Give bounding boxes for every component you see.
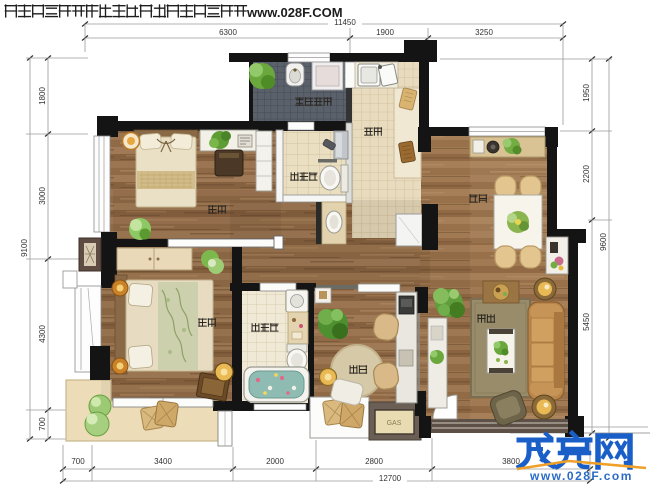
svg-text:9600: 9600	[599, 233, 608, 251]
svg-text:9100: 9100	[20, 239, 29, 257]
svg-text:www.028F.COM: www.028F.COM	[246, 5, 343, 20]
svg-text:5450: 5450	[582, 313, 591, 331]
svg-text:4300: 4300	[38, 325, 47, 343]
svg-text:3250: 3250	[475, 28, 493, 37]
svg-text:6300: 6300	[219, 28, 237, 37]
svg-text:3400: 3400	[154, 457, 172, 466]
svg-text:1950: 1950	[582, 84, 591, 102]
svg-text:www.028F.com: www.028F.com	[529, 469, 633, 483]
svg-text:3800: 3800	[502, 457, 520, 466]
svg-text:700: 700	[38, 417, 47, 431]
svg-text:700: 700	[71, 457, 85, 466]
svg-text:1900: 1900	[376, 28, 394, 37]
svg-text:3000: 3000	[38, 187, 47, 205]
svg-text:1800: 1800	[38, 87, 47, 105]
svg-text:GAS: GAS	[387, 420, 402, 427]
svg-text:2000: 2000	[266, 457, 284, 466]
svg-text:2800: 2800	[365, 457, 383, 466]
svg-text:12700: 12700	[379, 474, 402, 483]
svg-text:2200: 2200	[582, 165, 591, 183]
